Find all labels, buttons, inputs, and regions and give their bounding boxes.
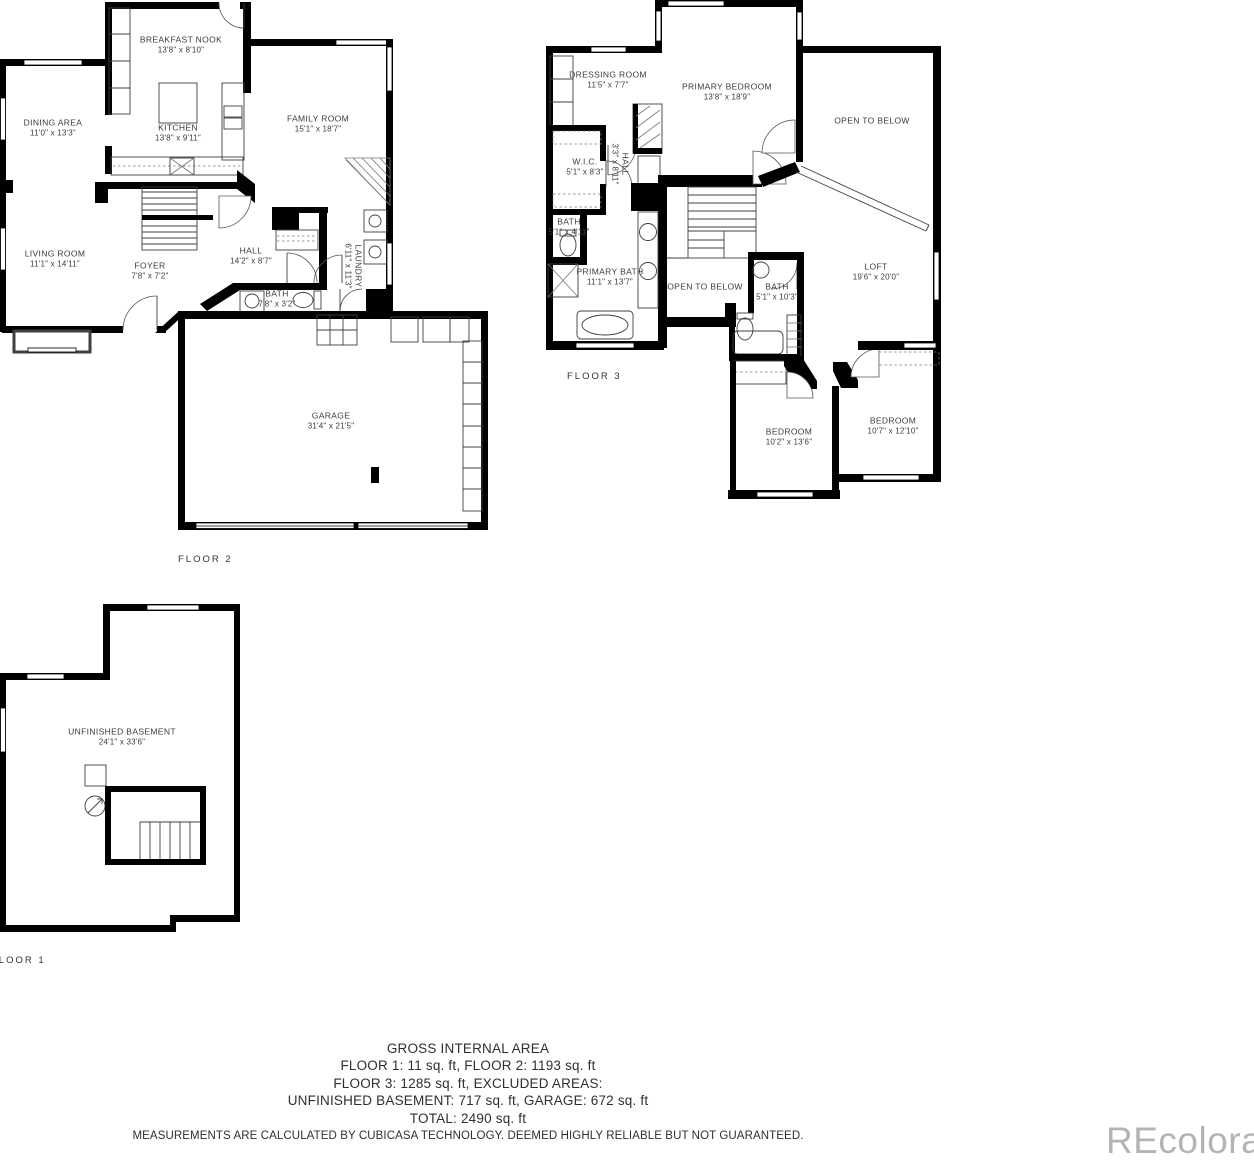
floor3-tag: FLOOR 3 [567,371,622,382]
room-name: HALL [230,245,272,256]
recolorado-watermark: REcolorado [1106,1120,1254,1162]
room-dims: 31'4" x 21'5" [308,421,354,431]
room-label-unfinished-basement: UNFINISHED BASEMENT 24'1" x 33'6" [68,726,176,747]
room-dims: 10'7" x 12'10" [867,426,918,436]
room-label-primary-bath: PRIMARY BATH 11'1" x 13'7" [576,266,643,287]
room-dims: 11'5" x 7'7" [569,80,647,90]
room-label-hall-f3: HALL 3'3" x 8'11" [609,143,630,184]
room-dims: 10'2" x 13'6" [766,437,812,447]
room-dims: 11'1" x 13'7" [576,277,643,287]
floor1-tag: FLOOR 1 [0,955,46,966]
room-name: HALL [620,143,631,184]
room-name: BATH [756,281,798,292]
gross-internal-area-summary: GROSS INTERNAL AREA FLOOR 1: 11 sq. ft, … [128,1040,808,1145]
room-label-living-room: LIVING ROOM 11'1" x 14'11" [25,248,86,269]
summary-disclaimer: MEASUREMENTS ARE CALCULATED BY CUBICASA … [128,1128,808,1145]
summary-line-3: UNFINISHED BASEMENT: 717 sq. ft, GARAGE:… [128,1092,808,1109]
room-label-breakfast-nook: BREAKFAST NOOK 13'8" x 8'10" [140,34,222,55]
room-name: BREAKFAST NOOK [140,34,222,45]
room-dims: 5'1" x 4'11" [548,227,589,237]
room-dims: 13'8" x 8'10" [140,45,222,55]
room-name: GARAGE [308,410,354,421]
room-label-open-to-below-upper: OPEN TO BELOW [834,115,910,126]
room-label-laundry: LAUNDRY 6'11" x 11'3" [342,243,363,288]
room-name: BEDROOM [766,426,812,437]
room-label-dining-area: DINING AREA 11'0" x 13'3" [24,117,83,138]
room-name: KITCHEN [155,122,201,133]
room-name: LAUNDRY [353,243,364,288]
room-dims: 15'1" x 18'7" [287,124,349,134]
room-label-loft: LOFT 19'6" x 20'0" [853,261,899,282]
room-name: LOFT [853,261,899,272]
room-dims: 7'8" x 7'2" [131,271,168,281]
room-name: PRIMARY BATH [576,266,643,277]
room-label-bath-small: BATH 5'1" x 4'11" [548,216,589,237]
room-label-kitchen: KITCHEN 13'8" x 9'11" [155,122,201,143]
room-dims: 5'1" x 8'3" [566,167,603,177]
room-dims: 11'1" x 14'11" [25,259,86,269]
room-label-wic: W.I.C. 5'1" x 8'3" [566,156,603,177]
room-name: W.I.C. [566,156,603,167]
room-dims: 13'8" x 9'11" [155,133,201,143]
room-label-foyer: FOYER 7'8" x 7'2" [131,260,168,281]
room-name: FOYER [131,260,168,271]
summary-line-1: FLOOR 1: 11 sq. ft, FLOOR 2: 1193 sq. ft [128,1057,808,1074]
room-label-garage: GARAGE 31'4" x 21'5" [308,410,354,431]
room-name: LIVING ROOM [25,248,86,259]
room-label-primary-bedroom: PRIMARY BEDROOM 13'8" x 18'9" [682,81,772,102]
summary-line-2: FLOOR 3: 1285 sq. ft, EXCLUDED AREAS: [128,1075,808,1092]
room-name: UNFINISHED BASEMENT [68,726,176,737]
room-name: DRESSING ROOM [569,69,647,80]
room-name: DINING AREA [24,117,83,128]
room-dims: 11'0" x 13'3" [24,128,83,138]
room-name: BATH [258,288,295,299]
floorplan-canvas: BREAKFAST NOOK 13'8" x 8'10" DINING AREA… [0,0,1254,1154]
summary-title: GROSS INTERNAL AREA [128,1040,808,1057]
room-label-bath-hall: BATH 5'1" x 10'3" [756,281,798,302]
room-dims: 5'1" x 10'3" [756,292,798,302]
room-label-family-room: FAMILY ROOM 15'1" x 18'7" [287,113,349,134]
room-dims: 3'3" x 8'11" [609,143,619,184]
room-label-dressing-room: DRESSING ROOM 11'5" x 7'7" [569,69,647,90]
room-dims: 7'8" x 3'2" [258,299,295,309]
room-label-bath-f2: BATH 7'8" x 3'2" [258,288,295,309]
room-dims: 13'8" x 18'9" [682,92,772,102]
room-dims: 24'1" x 33'6" [68,737,176,747]
room-dims: 14'2" x 8'7" [230,256,272,266]
room-label-bedroom-a: BEDROOM 10'2" x 13'6" [766,426,812,447]
room-name: OPEN TO BELOW [834,115,910,126]
floor2-tag: FLOOR 2 [178,554,233,565]
floor1-walls [0,604,240,932]
room-name: BEDROOM [867,415,918,426]
room-name: FAMILY ROOM [287,113,349,124]
room-label-bedroom-b: BEDROOM 10'7" x 12'10" [867,415,918,436]
room-label-hall-f2: HALL 14'2" x 8'7" [230,245,272,266]
room-name: PRIMARY BEDROOM [682,81,772,92]
room-name: BATH [548,216,589,227]
room-dims: 19'6" x 20'0" [853,272,899,282]
room-name: OPEN TO BELOW [667,281,743,292]
room-label-open-to-below-mid: OPEN TO BELOW [667,281,743,292]
summary-line-4: TOTAL: 2490 sq. ft [128,1110,808,1127]
room-dims: 6'11" x 11'3" [342,243,352,288]
